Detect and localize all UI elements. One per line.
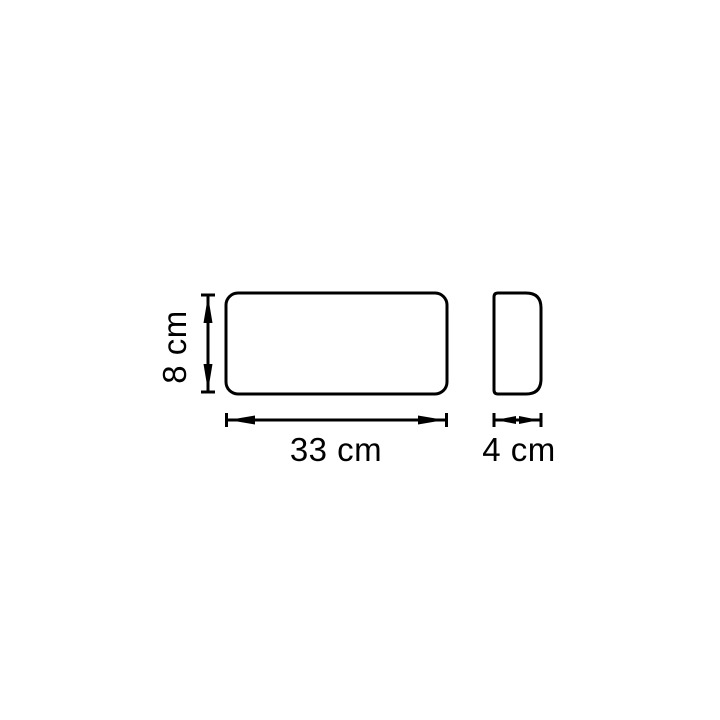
arrow-up-icon [204,296,213,323]
side-view-outline [494,293,541,394]
arrow-down-icon [204,364,213,391]
arrow-left-icon [229,416,256,425]
arrow-left-icon [496,416,516,424]
height-dimension-label: 8 cm [156,310,193,384]
dimension-drawing: 8 cm 33 cm 4 cm [0,0,720,720]
arrow-right-icon [418,416,445,425]
front-view-outline [226,293,447,394]
side-view [494,293,541,394]
width-dimension: 33 cm [227,413,447,468]
width-dimension-label: 33 cm [290,431,382,468]
front-view [226,293,447,394]
height-dimension: 8 cm [156,295,215,392]
arrow-right-icon [519,416,539,424]
depth-dimension-label: 4 cm [482,431,556,468]
dimension-drawing-svg: 8 cm 33 cm 4 cm [0,0,720,720]
depth-dimension: 4 cm [482,413,556,468]
